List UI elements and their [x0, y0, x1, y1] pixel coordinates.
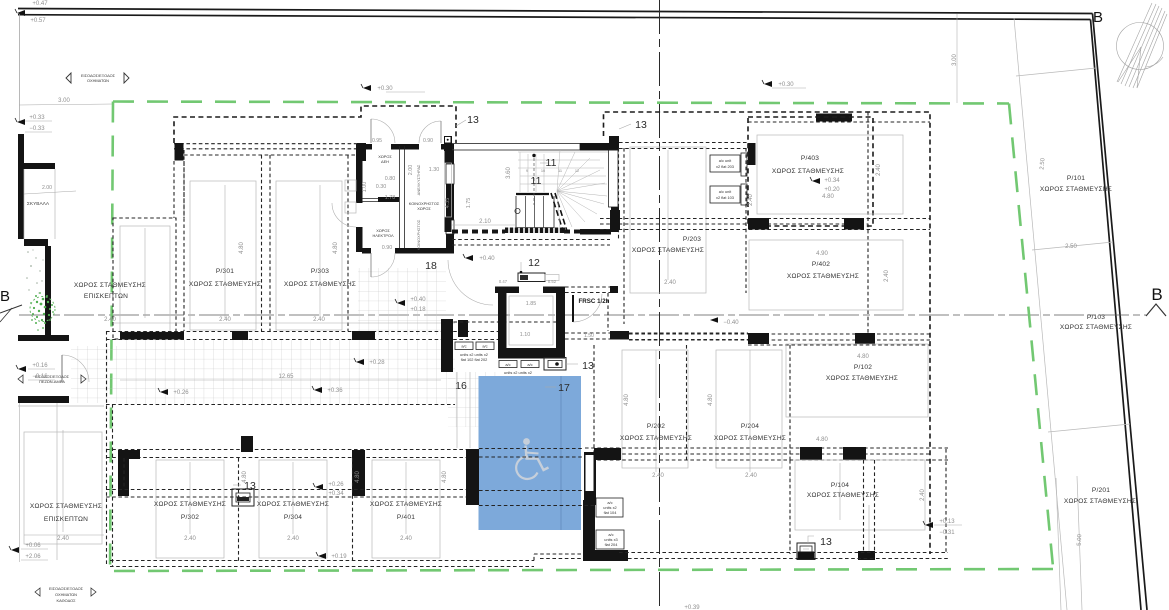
svg-text:2.40: 2.40 — [57, 536, 69, 542]
svg-text:ΧΩΡΟΣ ΣΤΑΘΜΕΥΣΗΣ: ΧΩΡΟΣ ΣΤΑΘΜΕΥΣΗΣ — [1060, 324, 1132, 331]
svg-text:2.50: 2.50 — [1065, 244, 1077, 250]
svg-text:0.30: 0.30 — [376, 184, 387, 190]
svg-text:17: 17 — [558, 382, 570, 394]
svg-text:4.35: 4.35 — [445, 198, 451, 209]
svg-text:ΣΚΥΒΑΛΑ: ΣΚΥΒΑΛΑ — [27, 201, 50, 207]
svg-text:+0.28: +0.28 — [369, 360, 385, 366]
svg-text:12.65: 12.65 — [278, 374, 294, 380]
svg-text:ΕΠΙΣΚΕΠΤΩΝ: ΕΠΙΣΚΕΠΤΩΝ — [84, 293, 128, 300]
svg-text:+0.34: +0.34 — [824, 178, 840, 184]
svg-text:ΟΧΗΜΑΤΩΝ: ΟΧΗΜΑΤΩΝ — [55, 592, 77, 597]
svg-text:13: 13 — [820, 536, 832, 548]
svg-text:1.78: 1.78 — [385, 195, 396, 201]
svg-text:a/c unit: a/c unit — [719, 158, 732, 163]
svg-text:P/402: P/402 — [812, 261, 830, 268]
svg-text:2.40: 2.40 — [184, 536, 196, 542]
svg-text:+0.57: +0.57 — [30, 18, 46, 24]
svg-text:2.40: 2.40 — [664, 280, 676, 286]
svg-text:a/c: a/c — [527, 362, 532, 367]
svg-text:+0.26: +0.26 — [328, 482, 344, 488]
svg-text:2.40: 2.40 — [920, 489, 926, 501]
svg-text:0.90: 0.90 — [382, 245, 393, 251]
svg-text:13: 13 — [244, 480, 256, 492]
svg-text:4.80: 4.80 — [816, 437, 828, 443]
svg-text:B: B — [1151, 285, 1162, 304]
svg-text:+0.06: +0.06 — [25, 543, 41, 549]
svg-text:ΧΩΡΟΣ: ΧΩΡΟΣ — [417, 206, 431, 211]
svg-text:+0.13: +0.13 — [939, 519, 955, 525]
svg-text:ΚΑΘΟΔΟΣ: ΚΑΘΟΔΟΣ — [56, 598, 76, 603]
svg-text:1.50: 1.50 — [584, 333, 594, 339]
svg-text:+0.40: +0.40 — [410, 297, 426, 303]
svg-text:P/201: P/201 — [1092, 487, 1110, 494]
svg-text:2.40: 2.40 — [652, 473, 664, 479]
svg-text:ΧΩΡΟΣ ΣΤΑΘΜΕΥΣΗΣ: ΧΩΡΟΣ ΣΤΑΘΜΕΥΣΗΣ — [1064, 498, 1136, 505]
svg-text:4.80: 4.80 — [857, 354, 869, 360]
svg-text:x2 flat 203: x2 flat 203 — [716, 164, 734, 169]
svg-text:1.75: 1.75 — [466, 198, 472, 209]
svg-text:P/102: P/102 — [854, 364, 872, 371]
svg-text:B: B — [1093, 9, 1103, 26]
svg-text:0.95: 0.95 — [372, 138, 382, 144]
svg-text:−0.33: −0.33 — [29, 126, 45, 132]
svg-text:+0.34: +0.34 — [328, 491, 344, 497]
svg-text:P/103: P/103 — [1087, 314, 1105, 321]
svg-text:+0.26: +0.26 — [173, 390, 189, 396]
svg-text:4.80: 4.80 — [333, 242, 339, 254]
svg-text:ΑΝΕΛΚΥΣΤΗΡΑΣ: ΑΝΕΛΚΥΣΤΗΡΑΣ — [416, 164, 421, 195]
svg-text:2.40: 2.40 — [104, 317, 116, 323]
svg-text:+0.39: +0.39 — [684, 605, 700, 610]
svg-text:0.47: 0.47 — [499, 279, 508, 284]
svg-text:+0.36: +0.36 — [327, 388, 343, 394]
svg-text:ΧΩΡΟΣ ΣΤΑΘΜΕΥΣΗΣ: ΧΩΡΟΣ ΣΤΑΘΜΕΥΣΗΣ — [30, 503, 102, 510]
svg-text:flat 204: flat 204 — [605, 542, 619, 547]
svg-text:+0.33: +0.33 — [29, 115, 45, 121]
svg-text:+0.19: +0.19 — [331, 554, 347, 560]
svg-text:ΧΩΡΟΣ ΣΤΑΘΜΕΥΣΗΣ: ΧΩΡΟΣ ΣΤΑΘΜΕΥΣΗΣ — [1040, 186, 1112, 193]
svg-text:ΚΟΙΝΟΧΡΗΣΤΟΣ: ΚΟΙΝΟΧΡΗΣΤΟΣ — [416, 219, 421, 250]
svg-text:13: 13 — [635, 119, 647, 131]
svg-text:2.40: 2.40 — [748, 194, 754, 206]
svg-text:a/c: a/c — [482, 344, 487, 349]
svg-text:x2 flat 103: x2 flat 103 — [716, 195, 734, 200]
svg-text:2.50: 2.50 — [1040, 157, 1047, 170]
svg-text:a/c: a/c — [505, 362, 510, 367]
svg-text:12: 12 — [528, 257, 540, 269]
svg-text:2.40: 2.40 — [884, 270, 890, 282]
svg-text:1.10: 1.10 — [520, 332, 531, 338]
svg-text:3.60: 3.60 — [506, 167, 512, 179]
svg-text:2.00: 2.00 — [408, 165, 414, 176]
svg-text:ΧΩΡΟΣ ΣΤΑΘΜΕΥΣΗΣ: ΧΩΡΟΣ ΣΤΑΘΜΕΥΣΗΣ — [826, 375, 898, 382]
svg-text:11: 11 — [558, 168, 562, 173]
svg-text:2.40: 2.40 — [313, 317, 325, 323]
svg-text:a/c: a/c — [461, 344, 466, 349]
svg-text:ΧΩΡΟΣ ΣΤΑΘΜΕΥΣΗΣ: ΧΩΡΟΣ ΣΤΑΘΜΕΥΣΗΣ — [74, 282, 146, 289]
svg-text:18: 18 — [425, 260, 437, 272]
svg-text:5.00: 5.00 — [1077, 533, 1083, 546]
svg-text:4.80: 4.80 — [442, 471, 448, 483]
svg-text:P/403: P/403 — [801, 155, 819, 162]
svg-text:4.80: 4.80 — [239, 242, 245, 254]
svg-text:flat 102 flat 202: flat 102 flat 202 — [461, 357, 488, 362]
svg-text:1.30: 1.30 — [429, 167, 440, 173]
svg-text:ΧΩΡΟΣ ΣΤΑΘΜΕΥΣΗΣ: ΧΩΡΟΣ ΣΤΑΘΜΕΥΣΗΣ — [807, 492, 879, 499]
svg-text:4.80: 4.80 — [624, 394, 630, 406]
svg-text:13: 13 — [582, 360, 594, 372]
svg-text:ΧΩΡΟΣ ΣΤΑΘΜΕΥΣΗΣ: ΧΩΡΟΣ ΣΤΑΘΜΕΥΣΗΣ — [787, 273, 859, 280]
svg-text:12: 12 — [575, 168, 579, 173]
svg-text:flat 104: flat 104 — [604, 510, 618, 515]
svg-text:+0.40: +0.40 — [479, 256, 495, 262]
svg-text:+0.20: +0.20 — [824, 187, 840, 193]
svg-text:P/101: P/101 — [1067, 175, 1085, 182]
svg-text:a/c unit: a/c unit — [719, 189, 732, 194]
svg-text:9: 9 — [526, 168, 528, 173]
svg-text:2.40: 2.40 — [219, 317, 231, 323]
svg-text:4.90: 4.90 — [816, 251, 828, 257]
svg-text:−0.40: −0.40 — [723, 320, 739, 326]
svg-text:−0.16: −0.16 — [32, 374, 48, 380]
svg-text:2.40: 2.40 — [876, 164, 882, 176]
svg-text:11: 11 — [531, 175, 542, 187]
svg-text:1.00: 1.00 — [362, 182, 368, 193]
svg-text:0.80: 0.80 — [385, 176, 396, 182]
svg-text:+0.16: +0.16 — [32, 363, 48, 369]
svg-text:0.90: 0.90 — [423, 138, 433, 144]
svg-text:4.80: 4.80 — [355, 471, 361, 483]
svg-text:FRSC 1/2h: FRSC 1/2h — [579, 298, 610, 305]
svg-text:2.40: 2.40 — [400, 536, 412, 542]
svg-text:+0.18: +0.18 — [410, 307, 426, 313]
svg-text:1.85: 1.85 — [526, 301, 537, 307]
svg-text:ΗΛΕΚΤΡΟΛ: ΗΛΕΚΤΡΟΛ — [372, 233, 394, 238]
svg-text:ΕΠΙΣΚΕΠΤΩΝ: ΕΠΙΣΚΕΠΤΩΝ — [44, 516, 88, 523]
svg-text:ΕΙΣΟΔΟΣ/ΕΞΟΔΟΣ: ΕΙΣΟΔΟΣ/ΕΞΟΔΟΣ — [49, 586, 84, 591]
svg-text:B: B — [0, 288, 10, 305]
svg-text:−0.31: −0.31 — [939, 530, 955, 536]
svg-text:2.40: 2.40 — [287, 536, 299, 542]
svg-text:4.80: 4.80 — [822, 194, 834, 200]
svg-text:0.52: 0.52 — [548, 279, 557, 284]
svg-text:+0.30: +0.30 — [377, 86, 393, 92]
svg-text:+0.47: +0.47 — [32, 1, 48, 7]
svg-text:13: 13 — [467, 114, 479, 126]
svg-text:3.00: 3.00 — [58, 98, 70, 104]
svg-text:ΟΧΗΜΑΤΩΝ: ΟΧΗΜΑΤΩΝ — [87, 78, 109, 83]
svg-text:ΔΕΗ: ΔΕΗ — [381, 159, 389, 164]
svg-text:4.80: 4.80 — [708, 394, 714, 406]
svg-text:2.10: 2.10 — [479, 219, 491, 225]
svg-text:P/203: P/203 — [683, 236, 701, 243]
svg-text:+2.06: +2.06 — [25, 554, 41, 560]
svg-text:+0.30: +0.30 — [778, 82, 794, 88]
svg-text:2.40: 2.40 — [745, 473, 757, 479]
svg-text:2.00: 2.00 — [42, 185, 52, 191]
svg-text:ΧΩΡΟΣ ΣΤΑΘΜΕΥΣΗΣ: ΧΩΡΟΣ ΣΤΑΘΜΕΥΣΗΣ — [772, 168, 844, 175]
